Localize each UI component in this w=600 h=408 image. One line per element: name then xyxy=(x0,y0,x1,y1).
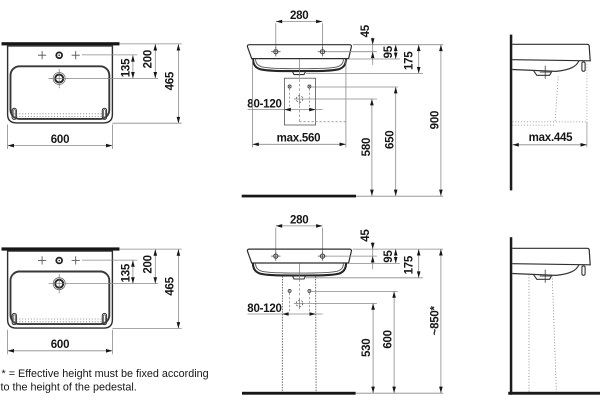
svg-text:135: 135 xyxy=(120,58,132,77)
svg-text:465: 465 xyxy=(165,276,177,295)
svg-text:to the height of the pedestal.: to the height of the pedestal. xyxy=(1,382,137,394)
svg-text:200: 200 xyxy=(143,50,155,68)
svg-text:600: 600 xyxy=(51,134,69,146)
svg-text:175: 175 xyxy=(403,255,415,274)
svg-text:280: 280 xyxy=(290,215,308,227)
svg-text:max.445: max.445 xyxy=(529,132,574,144)
svg-text:80-120: 80-120 xyxy=(247,303,281,315)
svg-text:580: 580 xyxy=(361,138,373,156)
svg-text:530: 530 xyxy=(361,339,373,357)
svg-text:600: 600 xyxy=(51,339,69,351)
svg-text:200: 200 xyxy=(143,255,155,273)
svg-text:900: 900 xyxy=(429,111,441,129)
svg-text:465: 465 xyxy=(165,71,177,90)
svg-text:* = Effective height must be f: * = Effective height must be fixed accor… xyxy=(2,368,209,380)
svg-text:45: 45 xyxy=(360,229,372,242)
svg-text:~850*: ~850* xyxy=(429,305,441,335)
svg-text:650: 650 xyxy=(385,131,397,149)
svg-text:max.560: max.560 xyxy=(277,132,321,144)
svg-text:45: 45 xyxy=(360,24,372,37)
svg-text:95: 95 xyxy=(383,250,395,263)
svg-text:135: 135 xyxy=(120,263,132,282)
svg-text:600: 600 xyxy=(383,330,395,348)
svg-text:175: 175 xyxy=(403,51,415,70)
svg-text:95: 95 xyxy=(383,45,395,58)
svg-text:280: 280 xyxy=(290,10,308,22)
